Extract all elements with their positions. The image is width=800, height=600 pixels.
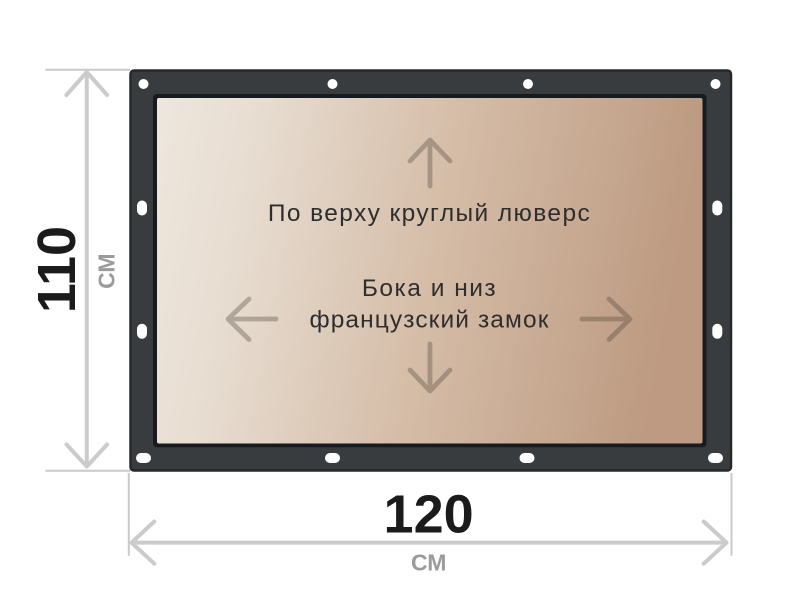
svg-text:По верху круглый люверс: По верху круглый люверс bbox=[268, 200, 591, 227]
svg-text:СМ: СМ bbox=[93, 253, 119, 288]
svg-text:СМ: СМ bbox=[411, 549, 446, 575]
svg-text:110: 110 bbox=[27, 226, 87, 313]
svg-text:Бока и низ: Бока и низ bbox=[362, 275, 497, 302]
svg-text:120: 120 bbox=[384, 484, 474, 544]
svg-text:французский замок: французский замок bbox=[309, 306, 549, 333]
